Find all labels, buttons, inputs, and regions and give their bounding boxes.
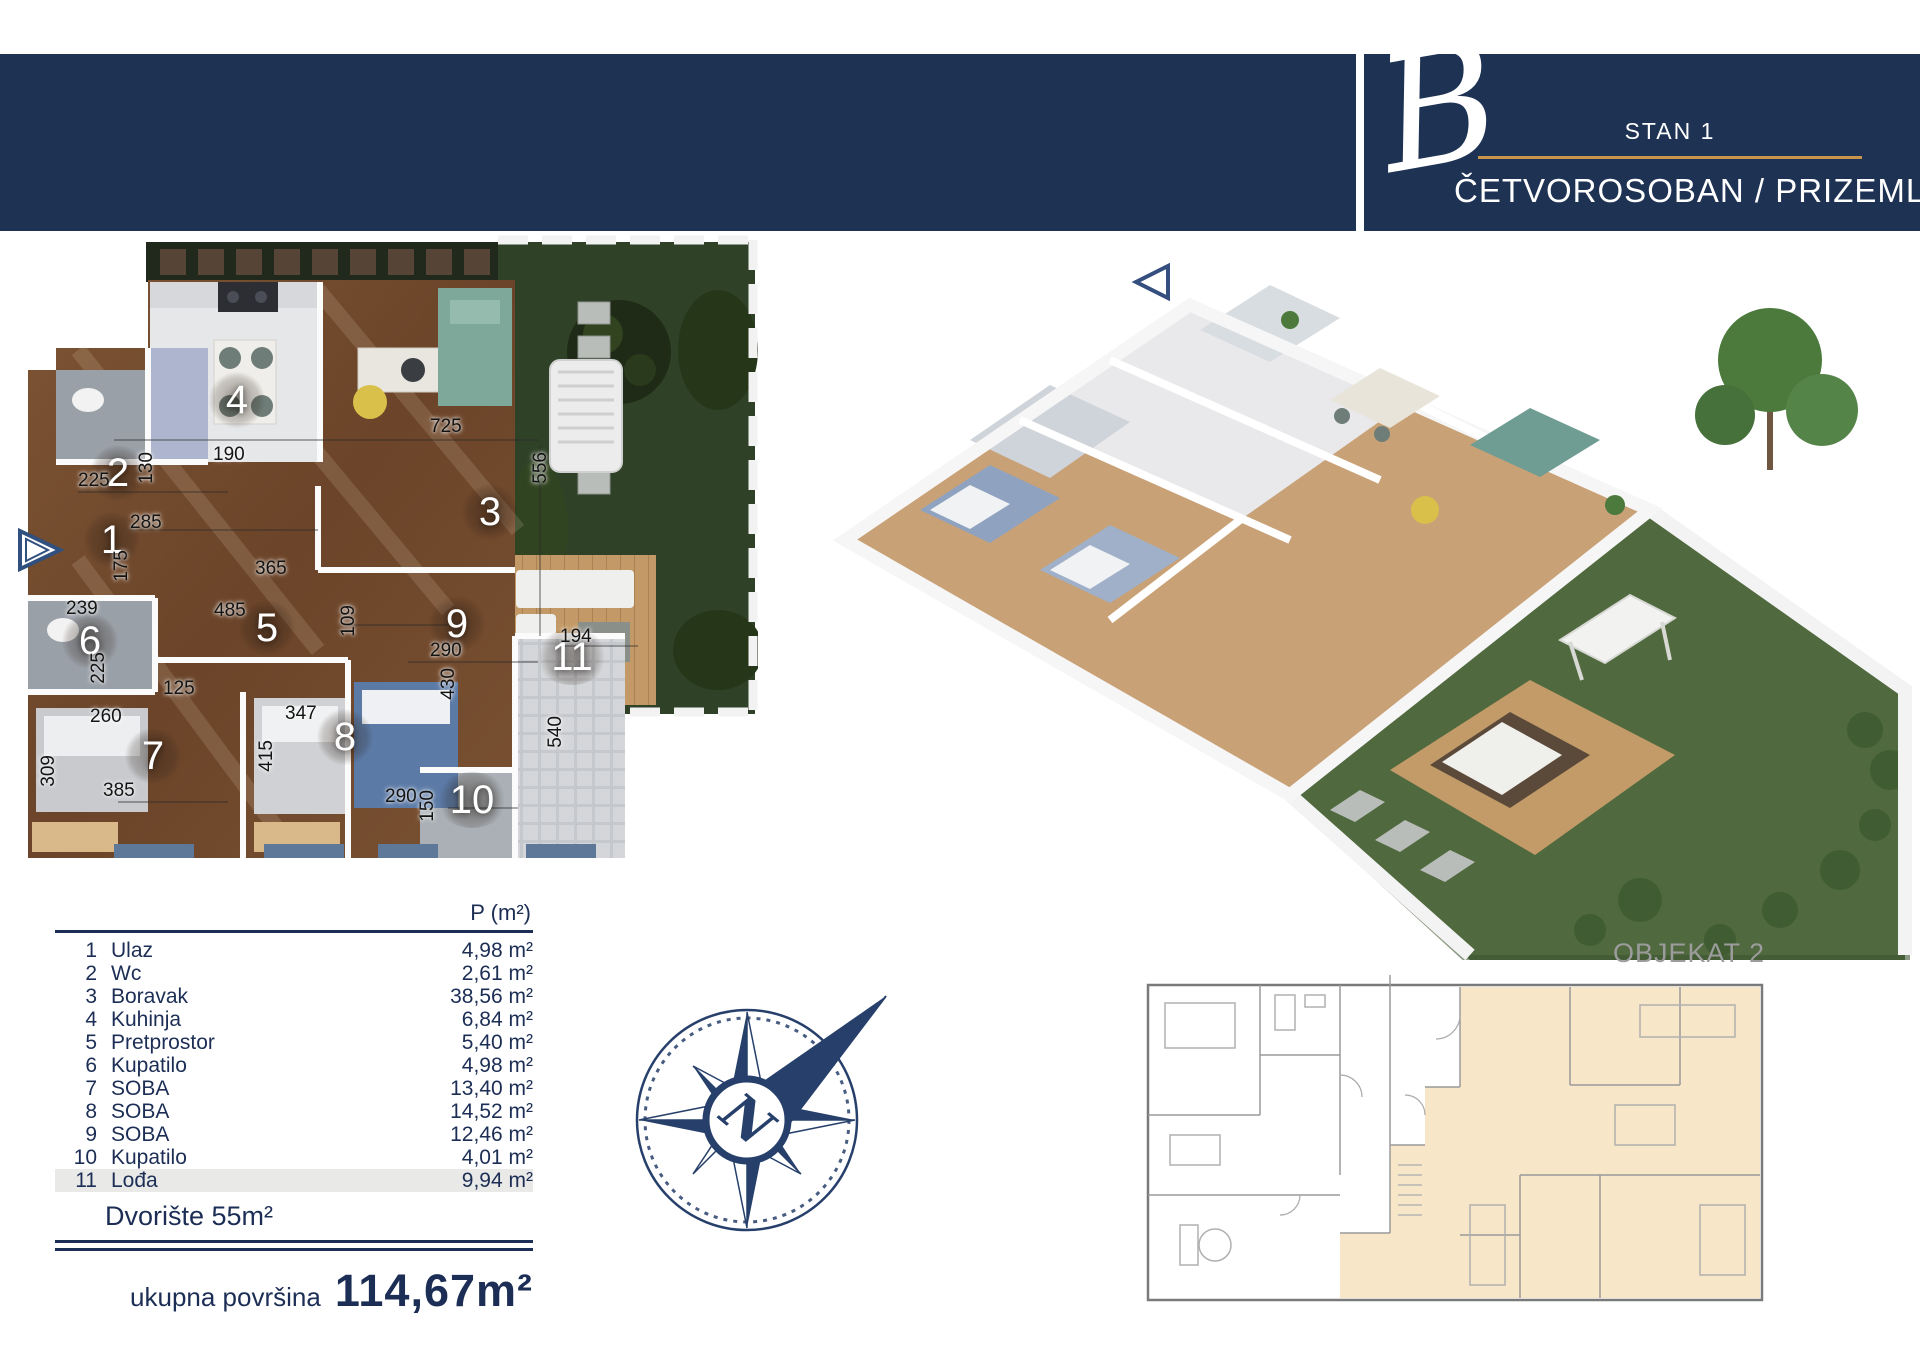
table-row: 9SOBA12,46 m²	[55, 1123, 533, 1146]
dim-347: 347	[285, 703, 317, 725]
row-num: 8	[55, 1100, 111, 1123]
brand-logo: B	[1367, 19, 1511, 197]
room-label-3: 3	[462, 484, 518, 540]
row-area: 2,61 m²	[462, 962, 533, 985]
row-area: 4,98 m²	[462, 1054, 533, 1077]
row-name: Ulaz	[111, 939, 462, 962]
gold-divider	[1478, 156, 1862, 159]
table-row: 6Kupatilo4,98 m²	[55, 1054, 533, 1077]
row-num: 3	[55, 985, 111, 1008]
total-label: ukupna površina	[130, 1282, 321, 1313]
row-name: Boravak	[111, 985, 450, 1008]
room-label-8: 8	[317, 709, 373, 765]
dim-130: 130	[136, 452, 158, 484]
dim-225v: 225	[88, 652, 110, 684]
dim-725: 725	[430, 416, 462, 438]
table-row: 7SOBA13,40 m²	[55, 1077, 533, 1100]
area-column-header: P (m²)	[55, 900, 533, 933]
planter-boxes	[160, 249, 490, 275]
row-num: 7	[55, 1077, 111, 1100]
compass-rose: N	[612, 968, 902, 1268]
dim-285: 285	[130, 512, 162, 534]
building-label: OBJEKAT 2	[1560, 938, 1765, 969]
table-row: 10Kupatilo4,01 m²	[55, 1146, 533, 1169]
pergola	[550, 360, 622, 472]
row-num: 4	[55, 1008, 111, 1031]
room-label-7: 7	[125, 728, 181, 784]
dim-430: 430	[438, 668, 460, 700]
row-num: 10	[55, 1146, 111, 1169]
room-label-5: 5	[239, 600, 295, 656]
dim-290a: 290	[430, 640, 462, 662]
row-name: Kuhinja	[111, 1008, 462, 1031]
view-arrow-3d	[1136, 266, 1168, 298]
row-area: 6,84 m²	[462, 1008, 533, 1031]
site-plan	[1140, 975, 1770, 1310]
dim-194: 194	[560, 626, 592, 648]
row-area: 38,56 m²	[450, 985, 533, 1008]
row-area: 13,40 m²	[450, 1077, 533, 1100]
header-left-bar	[0, 54, 1356, 231]
dim-385: 385	[103, 780, 135, 802]
room-label-4: 4	[209, 372, 265, 428]
dim-290b: 290	[385, 786, 417, 808]
dim-190: 190	[213, 444, 245, 466]
yard-note: Dvorište 55m²	[55, 1201, 533, 1232]
dim-556: 556	[530, 452, 552, 484]
row-area: 4,98 m²	[462, 939, 533, 962]
header-right-panel: B STAN 1 ČETVOROSOBAN / PRIZEMLJE	[1364, 54, 1920, 231]
table-row: 2Wc2,61 m²	[55, 962, 533, 985]
floorplan-3d-render	[770, 210, 1920, 960]
dim-109: 109	[338, 605, 360, 637]
row-area: 14,52 m²	[450, 1100, 533, 1123]
dim-125: 125	[163, 678, 195, 700]
floorplan-2d: 1 2 3 4 5 6 7 8 9 10 11 725 556 190 130 …	[18, 230, 758, 870]
row-area: 12,46 m²	[450, 1123, 533, 1146]
table-row-highlighted: 11Lođa9,94 m²	[55, 1169, 533, 1192]
dim-540: 540	[545, 716, 567, 748]
table-row: 5Pretprostor5,40 m²	[55, 1031, 533, 1054]
row-name: Kupatilo	[111, 1054, 462, 1077]
row-name: Wc	[111, 962, 462, 985]
dim-485: 485	[214, 600, 246, 622]
wc-area	[56, 370, 148, 462]
unit-label: STAN 1	[1476, 118, 1864, 145]
row-name: Lođa	[111, 1169, 462, 1192]
row-name: SOBA	[111, 1100, 450, 1123]
row-num: 2	[55, 962, 111, 985]
row-name: SOBA	[111, 1123, 450, 1146]
entry-closet	[148, 348, 208, 462]
row-num: 9	[55, 1123, 111, 1146]
dim-365: 365	[255, 558, 287, 580]
brochure-page: B STAN 1 ČETVOROSOBAN / PRIZEMLJE	[0, 0, 1920, 1358]
row-num: 11	[55, 1169, 111, 1192]
row-area: 9,94 m²	[462, 1169, 533, 1192]
row-area: 5,40 m²	[462, 1031, 533, 1054]
dim-415: 415	[256, 740, 278, 772]
row-name: Kupatilo	[111, 1146, 462, 1169]
row-num: 5	[55, 1031, 111, 1054]
dim-225: 225	[78, 470, 110, 492]
table-row: 3Boravak38,56 m²	[55, 985, 533, 1008]
entrance-arrow-2d	[14, 526, 66, 574]
total-row: ukupna površina 114,67m²	[55, 1265, 533, 1317]
dim-150: 150	[417, 790, 439, 822]
area-table: P (m²) 1Ulaz4,98 m² 2Wc2,61 m² 3Boravak3…	[55, 900, 533, 1317]
table-row: 8SOBA14,52 m²	[55, 1100, 533, 1123]
dim-309: 309	[38, 755, 60, 787]
page-title: ČETVOROSOBAN / PRIZEMLJE	[1454, 172, 1886, 210]
dim-175: 175	[111, 550, 133, 582]
room-label-10: 10	[436, 772, 508, 828]
total-value: 114,67m²	[335, 1265, 533, 1317]
dim-260: 260	[90, 706, 122, 728]
row-area: 4,01 m²	[462, 1146, 533, 1169]
table-row: 1Ulaz4,98 m²	[55, 939, 533, 962]
row-name: Pretprostor	[111, 1031, 462, 1054]
table-row: 4Kuhinja6,84 m²	[55, 1008, 533, 1031]
row-num: 1	[55, 939, 111, 962]
dim-239: 239	[66, 598, 98, 620]
total-divider	[55, 1240, 533, 1251]
row-num: 6	[55, 1054, 111, 1077]
tree-3d	[1695, 308, 1858, 470]
row-name: SOBA	[111, 1077, 450, 1100]
